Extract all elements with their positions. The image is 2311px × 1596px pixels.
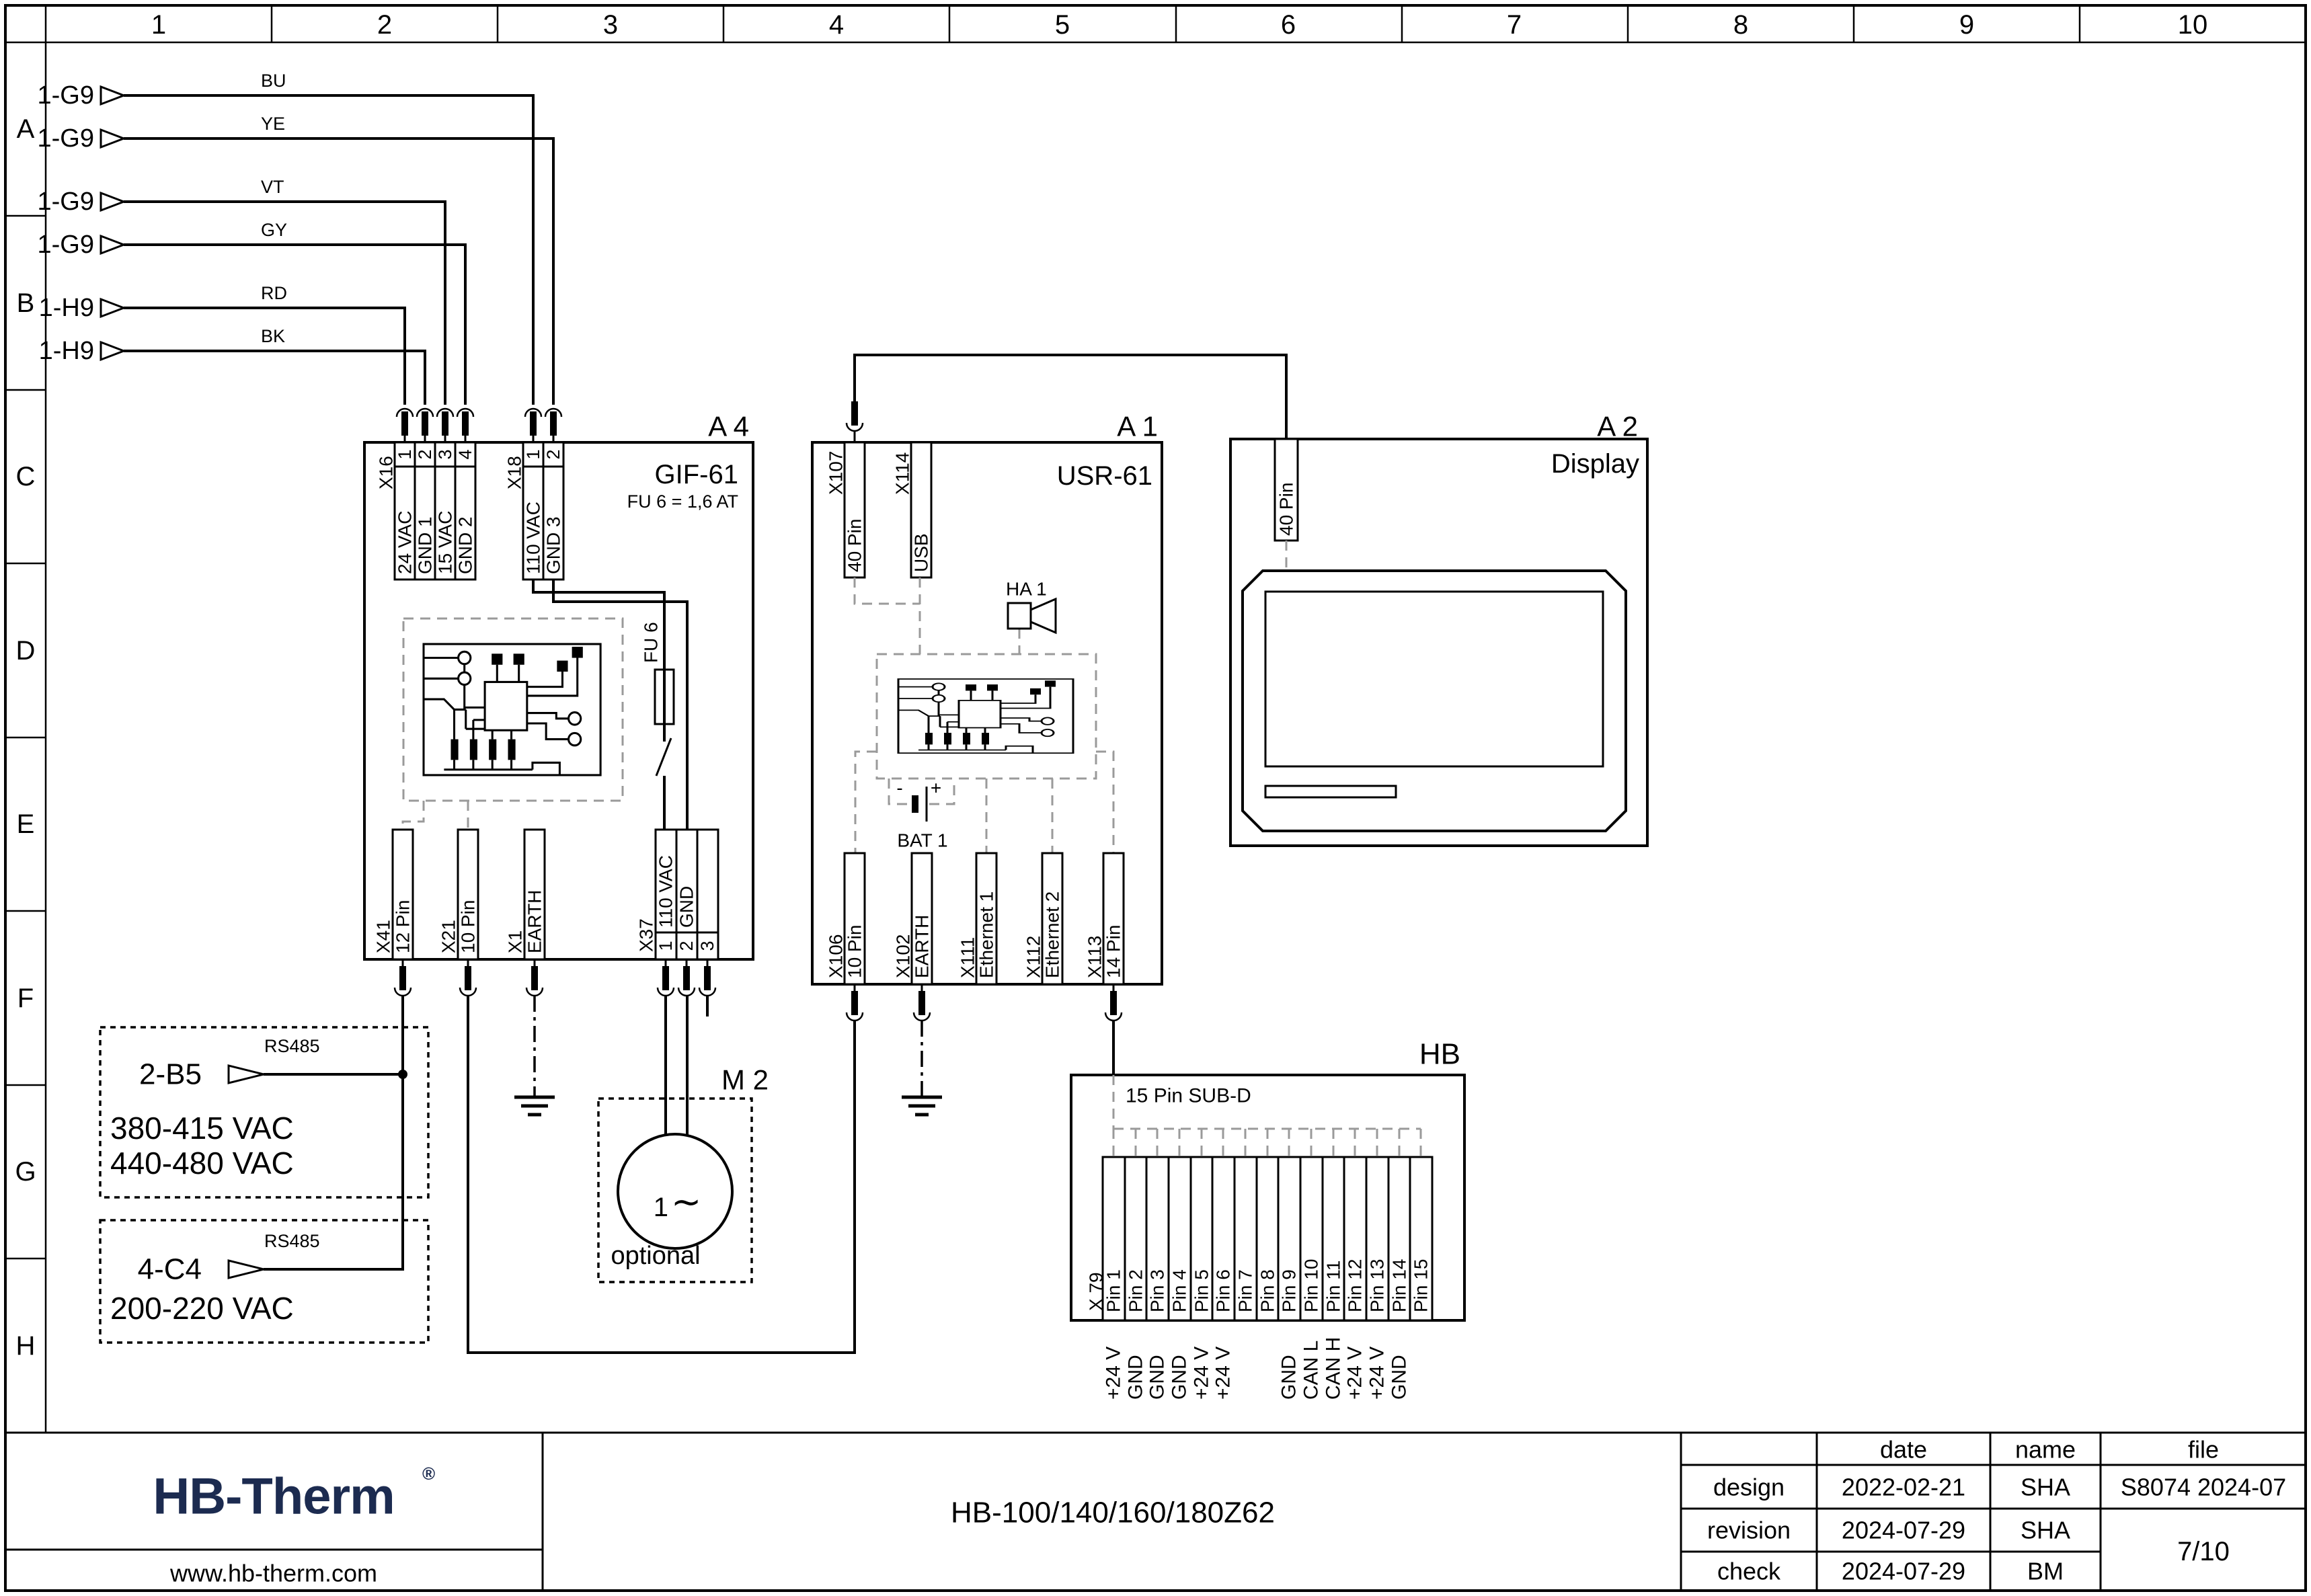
pin-number: 1 [395,449,415,459]
connector-x107: X107 40 Pin [826,442,865,577]
connector-x21: X21 10 Pin [438,830,479,959]
pin-label: 12 Pin [393,900,414,953]
grid-row: C [16,462,36,491]
grid-col: 6 [1281,10,1296,40]
plug-icon [395,959,411,996]
col-header-date: date [1880,1436,1927,1464]
plug-icon [526,959,543,996]
row-label: revision [1707,1517,1791,1544]
grid-col: 2 [377,10,392,40]
col-header-name: name [2015,1436,2076,1464]
document-title: HB-100/140/160/180Z62 [951,1497,1275,1529]
block-a2: A 2 Display 40 Pin [1230,411,1647,846]
signal-label: CAN H [1323,1337,1345,1400]
battery-minus: - [896,778,902,799]
pin-label: Pin 2 [1126,1269,1146,1312]
connector-id: X21 [438,920,459,953]
schematic-drawing: 1 2 3 4 5 6 7 8 9 10 A B C D E F G H 1-G… [0,0,2311,1596]
plug-icon [457,409,473,442]
pin-label: EARTH [524,890,545,953]
input-tag: 1-G9 [38,188,94,216]
pin-label: Ethernet 1 [976,891,997,978]
signal-arrow-icon [101,193,124,210]
input-bk: 1-H9 BK [39,326,285,365]
page-number: 7/10 [2177,1537,2230,1566]
connector-id: X107 [826,451,847,495]
wire-usr-display [855,355,1286,439]
pin-label: 14 Pin [1103,925,1124,978]
plug-icon [658,959,674,996]
grid-row: H [16,1331,36,1361]
signal-arrow-icon [101,342,124,360]
connector-x16: X16 1 2 3 4 24 VAC GND 1 15 VAC GND 2 [376,442,476,580]
connector-id: X1 [505,930,526,953]
row-date: 2022-02-21 [1842,1474,1965,1501]
plug-icon [847,984,863,1021]
pin-label: Pin 5 [1191,1269,1212,1312]
pin-label: USB [911,533,932,572]
earth-x1 [514,996,555,1115]
connector-id: X41 [373,920,394,953]
grid-col: 3 [603,10,618,40]
source-tag: 4-C4 [138,1253,202,1286]
wire-x37-motor [666,996,707,1136]
earth-ground-icon [902,1097,942,1115]
fuse-label: FU 6 [641,622,662,663]
grid-row: A [17,114,35,144]
pin-label: Pin 1 [1103,1269,1124,1312]
pin-label: Pin 11 [1323,1261,1344,1312]
plug-icon [437,409,453,442]
input-rd: 1-H9 RD [39,283,287,322]
bus-label: RS485 [264,1231,320,1251]
a2-title: Display [1551,449,1639,479]
connector-x41: X41 12 Pin [373,830,414,959]
grid-row: F [17,984,34,1013]
plug-icon [417,409,433,442]
pin-label: Pin 14 [1389,1259,1410,1312]
wire-color-code: YE [261,114,285,134]
wire-color-code: RD [261,283,287,303]
pin-label: GND 3 [543,516,564,574]
block-hb: HB 15 Pin SUB-D X 79 Pin 1 Pin 2 Pin 3 P… [1071,1038,1464,1400]
plug-icon [525,409,541,442]
input-bu: 1-G9 BU [38,71,286,110]
pin-label: Pin 10 [1301,1259,1322,1312]
connector-id: X16 [376,456,397,489]
signal-label: +24 V [1366,1347,1388,1400]
ha1-label: HA 1 [1006,579,1047,600]
signal-arrow-icon [101,299,124,317]
hb-pin-cells: Pin 1 Pin 2 Pin 3 Pin 4 Pin 5 Pin 6 Pin … [1103,1157,1432,1320]
plug-icon [397,409,413,442]
hb-signal-labels: +24 V GND GND GND +24 V +24 V GND CAN L … [1103,1337,1411,1400]
plug-icon [699,959,715,996]
voltage-line: 440-480 VAC [110,1146,294,1181]
grid-column-ticks [272,5,2080,42]
grid-col: 8 [1733,10,1748,40]
connector-x1: X1 EARTH [505,830,545,959]
signal-arrow-icon [101,130,124,147]
fuse-fu6: FU 6 [533,580,687,830]
signal-label: GND [1388,1355,1411,1400]
horn-icon [1008,603,1031,629]
bat1-label: BAT 1 [897,830,947,851]
connector-id: X114 [892,452,913,495]
hb-header: 15 Pin SUB-D [1126,1085,1251,1107]
signal-label: GND [1125,1355,1147,1400]
connector-x113: X113 14 Pin [1085,853,1124,984]
battery-plus: + [931,778,941,799]
pin-label: 15 VAC [435,511,456,574]
motor-m2: M 2 1 ∼ optional [598,1064,769,1283]
voltage-line: 200-220 VAC [110,1291,294,1326]
pin-label: Pin 6 [1213,1269,1234,1312]
a4-ref: A 4 [708,411,749,442]
plug-icon [678,959,695,996]
registered-mark: ® [422,1464,435,1484]
row-date: 2024-07-29 [1842,1517,1965,1544]
grid-column-labels: 1 2 3 4 5 6 7 8 9 10 [151,10,2207,40]
connector-id: X111 [957,937,978,978]
connector-x112: X112 Ethernet 2 [1023,853,1063,984]
a1-pcb-box [877,654,1096,779]
connector-x111: X111 Ethernet 1 [957,853,997,984]
wire-x21-x106 [468,996,855,1353]
title-block: HB-Therm ® www.hb-therm.com HB-100/140/1… [5,1433,2306,1591]
connector-a2-40pin: 40 Pin [1275,439,1298,541]
display-screen-icon [1243,571,1626,831]
block-a1: A 1 USR-61 X107 40 Pin X114 USB HA 1 - +… [812,411,1162,985]
wire-color-code: GY [261,220,287,240]
pin-number: 2 [415,449,435,459]
grid-col: 9 [1959,10,1974,40]
plug-icon [545,409,561,442]
bus-label: RS485 [264,1036,320,1056]
pin-label: GND 1 [415,516,436,574]
input-tag: 1-G9 [38,81,94,110]
a4-pcb-links [403,801,468,830]
col-header-file: file [2188,1436,2219,1464]
battery-bat1: - + BAT 1 [889,778,954,851]
sheet-frame: 1 2 3 4 5 6 7 8 9 10 A B C D E F G H [5,5,2306,1591]
a1-ref: A 1 [1117,411,1158,442]
grid-col: 10 [2178,10,2208,40]
pin-label: Pin 3 [1147,1269,1168,1312]
input-tag: 1-H9 [39,294,94,322]
signal-label: CAN L [1300,1341,1323,1400]
pin-number: 3 [435,449,455,459]
signal-label: GND [1278,1355,1300,1400]
signal-arrow-icon [101,236,124,253]
pin-label: 10 Pin [458,900,479,953]
m2-note: optional [611,1242,700,1270]
hb-ref: HB [1419,1038,1460,1071]
earth-x102 [902,1021,942,1115]
pin-number: 4 [455,449,475,459]
company-website: www.hb-therm.com [169,1560,377,1587]
input-vt: 1-G9 VT [38,177,284,216]
connector-x18: X18 1 2 110 VAC GND 3 [504,442,564,580]
source-4c4: 4-C4 RS485 200-220 VAC [100,1220,428,1343]
horn-cone-icon [1031,599,1056,633]
pin-label: Pin 12 [1345,1259,1366,1312]
pin-label: 110 VAC [656,855,676,928]
plug-icons-a4-top [397,409,561,442]
pin-number: 2 [543,449,563,459]
input-arrows: 1-G9 BU 1-G9 YE 1-G9 VT 1-G9 GY 1-H9 RD … [38,71,553,405]
block-a4: A 4 GIF-61 FU 6 = 1,6 AT X16 1 2 3 4 24 … [364,411,753,960]
plug-icons-a4-bottom [395,959,715,996]
input-tag: 1-H9 [39,337,94,365]
connector-x106: X106 10 Pin [826,853,865,984]
connector-id: X113 [1085,936,1105,978]
connector-id: X18 [504,456,525,489]
wire-color-code: VT [261,177,284,197]
switch-icon [656,738,671,776]
connector-x102: X102 EARTH [893,853,933,984]
pin-number: 2 [676,941,697,951]
file-number: S8074 2024-07 [2121,1474,2286,1501]
signal-label: +24 V [1191,1347,1213,1400]
source-tag: 2-B5 [139,1058,202,1091]
source-2b5: 2-B5 RS485 380-415 VAC 440-480 VAC [100,1027,428,1197]
pin-label: 110 VAC [523,502,544,574]
pin-label: Pin 9 [1279,1269,1300,1312]
grid-col: 7 [1507,10,1522,40]
a4-title: GIF-61 [655,460,738,489]
pin-label: Pin 15 [1411,1259,1432,1312]
sheet-border [5,5,2306,1591]
grid-row: G [15,1157,36,1187]
bottom-wires [264,996,1113,1353]
row-label: design [1713,1474,1785,1501]
signal-arrow-icon [229,1066,264,1083]
signal-label: GND [1146,1355,1169,1400]
wire-color-code: BK [261,326,285,346]
pin-label: GND [676,886,697,928]
pin-label: Pin 4 [1169,1269,1190,1312]
grid-col: 1 [151,10,166,40]
junction-dot [398,1070,407,1079]
connector-id: X112 [1023,936,1044,978]
grid-row: E [17,809,35,839]
pin-number: 3 [697,941,717,951]
pin-number: 1 [523,449,543,459]
connector-id: X106 [826,934,847,978]
grid-row-ticks [5,216,46,1259]
pin-label: Pin 13 [1367,1259,1388,1312]
pin-label: 40 Pin [1276,483,1297,536]
ac-wave-icon: ∼ [671,1182,701,1222]
row-label: check [1717,1558,1781,1585]
input-wires [124,95,553,405]
pin-label: 10 Pin [845,925,865,978]
grid-col: 4 [829,10,844,40]
input-tag: 1-G9 [38,231,94,259]
plug-icon [460,959,476,996]
a1-pcb-links [855,577,1113,853]
wire-color-code: BU [261,71,286,91]
a4-fuse-note: FU 6 = 1,6 AT [627,491,738,512]
connector-x37: X37 110 VAC GND 1 2 3 [636,830,719,959]
grid-col: 5 [1055,10,1070,40]
grid-row: B [17,288,35,318]
plug-icon [1105,984,1122,1021]
row-name: SHA [2021,1474,2070,1501]
pin-label: EARTH [912,915,933,978]
pin-label: Ethernet 2 [1042,891,1063,978]
signal-arrow-icon [101,87,124,104]
a1-title: USR-61 [1057,461,1152,491]
signal-label: +24 V [1212,1347,1235,1400]
schematic-sheet: 1 2 3 4 5 6 7 8 9 10 A B C D E F G H 1-G… [0,0,2311,1596]
input-ye: 1-G9 YE [38,114,286,153]
pin-label: 24 VAC [395,511,416,574]
plug-icon [914,984,930,1021]
row-date: 2024-07-29 [1842,1558,1965,1585]
pin-label: GND 2 [455,516,476,574]
a2-ref: A 2 [1597,411,1638,442]
a4-pcb-box [403,619,623,801]
company-logo: HB-Therm [153,1468,394,1525]
signal-arrow-icon [229,1261,264,1278]
m2-ref: M 2 [721,1064,769,1096]
motor-phase: 1 [654,1193,668,1222]
pin-label: Pin 8 [1257,1269,1278,1312]
signal-label: +24 V [1103,1347,1125,1400]
signal-label: GND [1169,1355,1191,1400]
plug-icon [847,401,863,442]
voltage-line: 380-415 VAC [110,1111,294,1146]
pin-number: 1 [656,941,676,951]
connector-id: X102 [893,934,914,978]
battery-icon [912,795,918,813]
grid-row: D [16,636,36,666]
input-gy: 1-G9 GY [38,220,288,259]
pin-label: 40 Pin [845,519,865,572]
input-tag: 1-G9 [38,124,94,153]
pin-label: Pin 7 [1235,1269,1256,1312]
row-name: BM [2027,1558,2064,1585]
signal-label: +24 V [1344,1347,1366,1400]
connector-x114: X114 USB [892,442,932,577]
earth-ground-icon [514,1097,555,1115]
horn-ha1: HA 1 [1006,579,1056,633]
row-name: SHA [2021,1517,2070,1544]
connector-id: X37 [636,918,657,952]
